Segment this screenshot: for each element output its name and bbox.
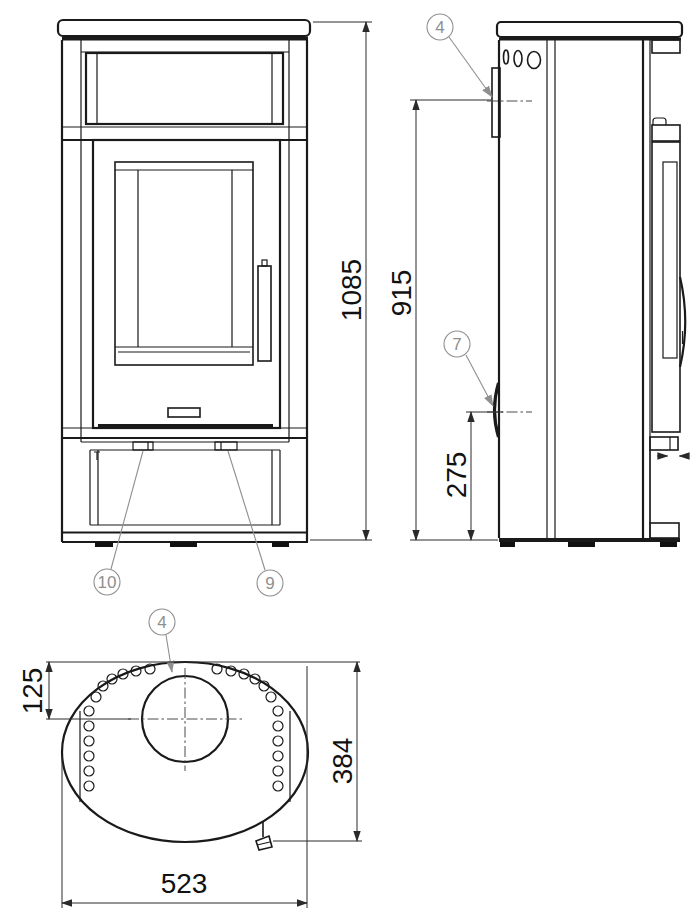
door-glass-panes <box>115 170 253 352</box>
dimension-rear-outlet-text: 915 <box>386 270 417 317</box>
side-inner-lines <box>547 40 650 538</box>
shelf-front-tab <box>653 118 666 125</box>
upper-compartment-posts <box>97 53 272 124</box>
door-profile-inner-panel <box>663 162 677 358</box>
callout-4-top-leader <box>166 635 172 672</box>
front-foot-right <box>272 542 289 547</box>
shelf-front-edge <box>652 125 680 141</box>
door-handle-knob <box>262 260 267 266</box>
convection-holes <box>84 664 283 791</box>
callout-4-top-number: 4 <box>157 613 166 632</box>
side-foot-front <box>660 542 677 547</box>
cap-front-lip <box>652 40 680 53</box>
side-view: 4 7 915 275 <box>386 14 689 547</box>
front-foot-middle <box>170 542 197 547</box>
front-foot-left <box>95 542 113 547</box>
left-tab <box>133 442 153 450</box>
callout-9-leader <box>228 451 265 570</box>
callout-10-number: 10 <box>98 573 117 592</box>
air-vent-slot <box>168 408 200 417</box>
callout-4-side-leader <box>449 37 492 97</box>
right-tab <box>215 442 237 450</box>
dimension-overall-height-text: 1085 <box>336 259 367 321</box>
callout-4-side-number: 4 <box>435 18 444 37</box>
callout-10-leader <box>111 451 143 569</box>
front-view: 10 9 1085 <box>58 20 372 596</box>
callout-7-number: 7 <box>452 335 461 354</box>
dimension-depth: 384 <box>273 662 362 841</box>
dimension-side-inlet-text: 275 <box>441 452 472 499</box>
door-sill-profile <box>650 437 678 450</box>
dimension-side-inlet-height: 275 <box>441 412 503 540</box>
top-view: 4 125 384 523 <box>17 609 362 908</box>
callout-7-leader <box>466 355 493 406</box>
base-latch-detail <box>94 452 100 460</box>
dimension-depth-text: 384 <box>327 738 358 785</box>
dimension-overall-height: 1085 <box>310 22 372 540</box>
side-top-plate <box>497 22 682 37</box>
door-handle <box>258 266 271 361</box>
side-outer-lines <box>499 40 643 538</box>
technical-drawing-page: 10 9 1085 <box>0 0 700 918</box>
dimension-flue-offset: 125 <box>17 662 49 719</box>
callout-9-number: 9 <box>265 574 274 593</box>
fire-door <box>93 140 280 428</box>
door-profile <box>652 142 680 432</box>
dimension-rear-outlet-height: 915 <box>386 100 491 540</box>
front-inner-columns <box>81 40 289 442</box>
side-foot-middle <box>568 542 595 547</box>
dimension-flue-offset-text: 125 <box>17 668 48 715</box>
base-compartment <box>90 450 280 525</box>
dimension-width-text: 523 <box>161 868 208 899</box>
stove-dimension-drawing: 10 9 1085 <box>0 0 700 918</box>
base-front-block <box>650 523 679 538</box>
upper-warming-compartment <box>86 53 283 124</box>
door-handle-top-view <box>256 822 272 850</box>
front-top-plate <box>58 20 310 36</box>
side-vent-holes <box>504 50 541 69</box>
side-foot-rear <box>500 542 515 547</box>
